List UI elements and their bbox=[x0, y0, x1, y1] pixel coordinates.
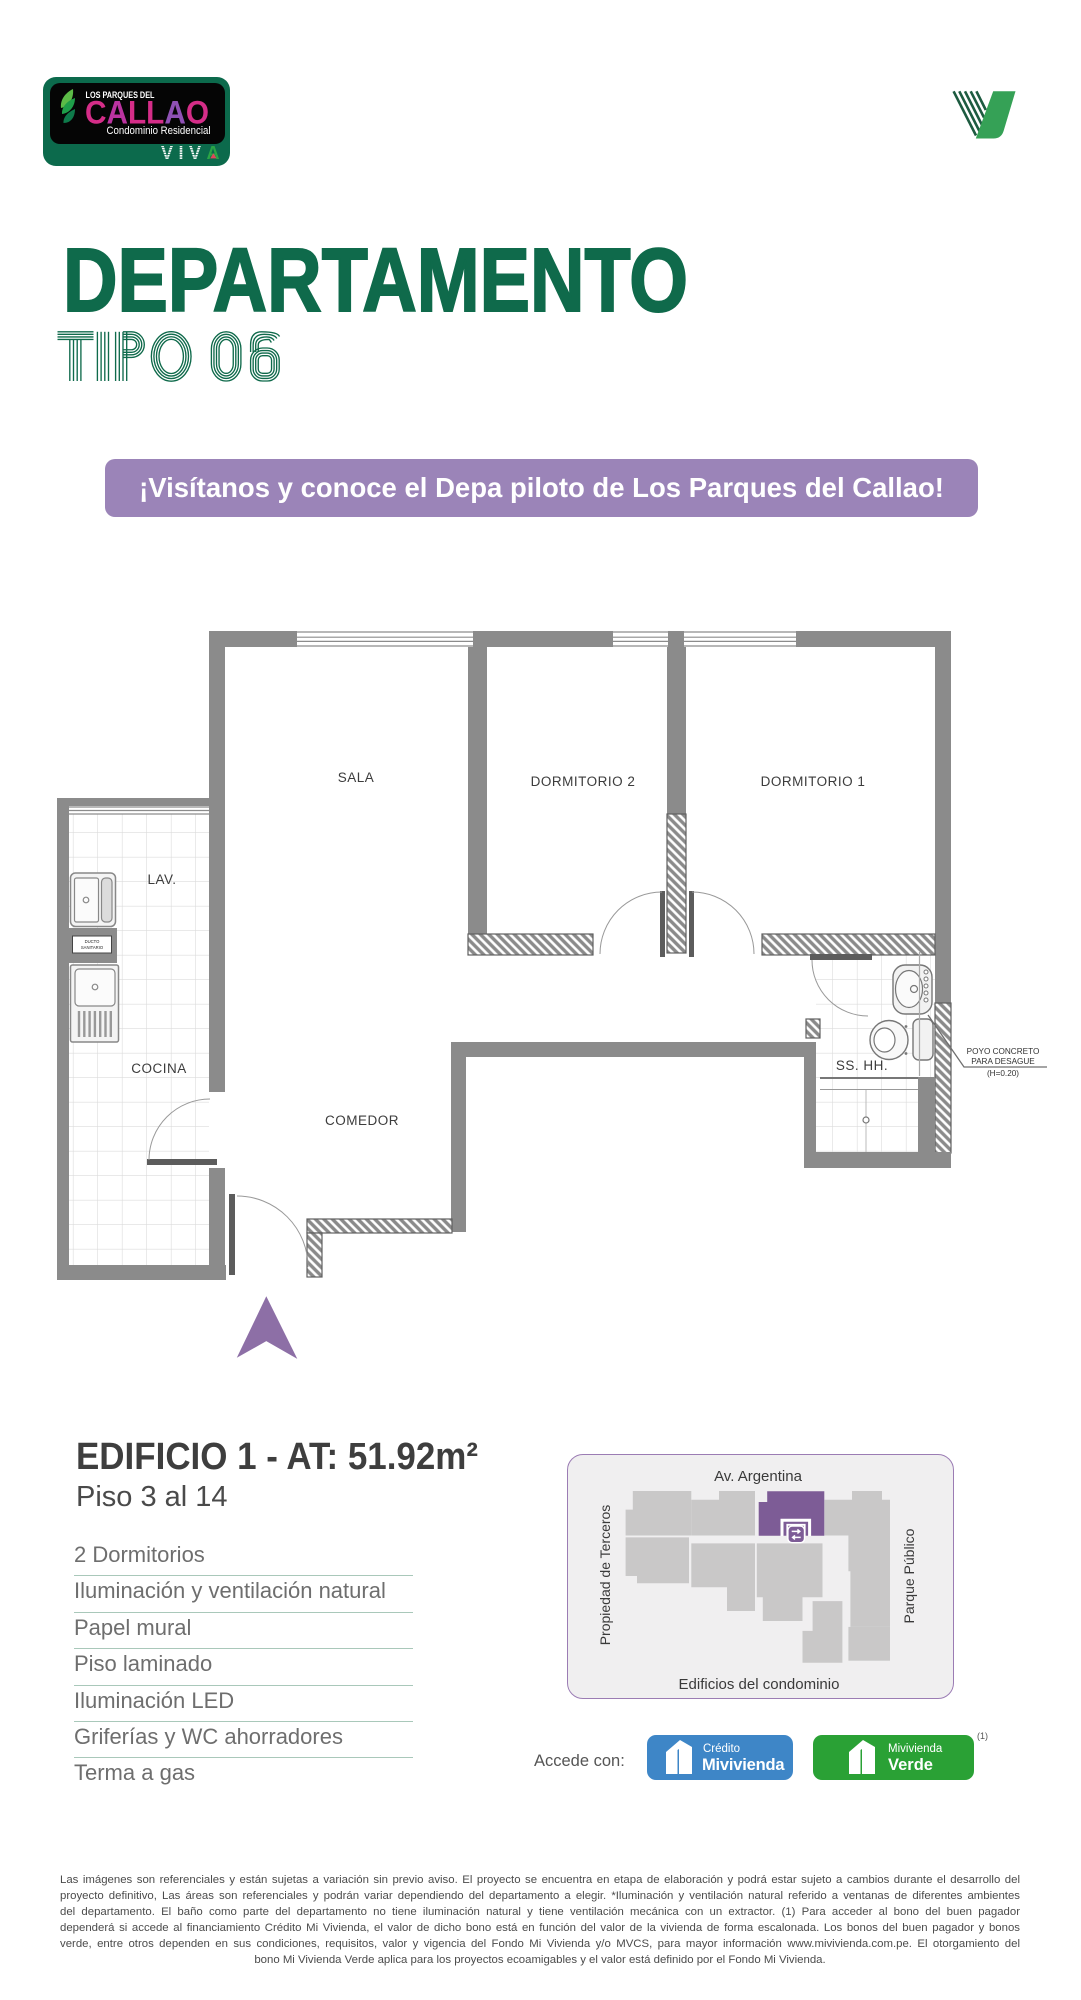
svg-text:COMEDOR: COMEDOR bbox=[325, 1113, 399, 1128]
svg-text:EDIFICIO 1 - AT: 51.92m²: EDIFICIO 1 - AT: 51.92m² bbox=[76, 1436, 478, 1478]
svg-text:POYO CONCRETO: POYO CONCRETO bbox=[967, 1047, 1040, 1056]
svg-text:(H=0.20): (H=0.20) bbox=[987, 1069, 1019, 1078]
svg-text:DEPARTAMENTO: DEPARTAMENTO bbox=[63, 236, 688, 326]
svg-text:Parque Público: Parque Público bbox=[901, 1528, 917, 1623]
svg-text:SANITARIO: SANITARIO bbox=[81, 945, 104, 950]
svg-text:LAV.: LAV. bbox=[147, 872, 176, 887]
svg-text:Av. Argentina: Av. Argentina bbox=[714, 1468, 802, 1485]
svg-text:Edificios del condominio: Edificios del condominio bbox=[679, 1676, 840, 1693]
svg-text:Condominio Residencial: Condominio Residencial bbox=[107, 125, 211, 137]
svg-text:PARA DESAGUE: PARA DESAGUE bbox=[971, 1057, 1035, 1066]
svg-text:VIVA: VIVA bbox=[161, 143, 220, 163]
svg-text:Propiedad de Terceros: Propiedad de Terceros bbox=[597, 1505, 613, 1646]
svg-text:DORMITORIO 2: DORMITORIO 2 bbox=[531, 774, 636, 789]
svg-text:SALA: SALA bbox=[338, 770, 375, 785]
svg-text:DUCTO: DUCTO bbox=[85, 939, 101, 944]
svg-text:COCINA: COCINA bbox=[131, 1061, 187, 1076]
svg-text:DORMITORIO 1: DORMITORIO 1 bbox=[761, 774, 866, 789]
svg-text:SS. HH.: SS. HH. bbox=[836, 1058, 888, 1073]
